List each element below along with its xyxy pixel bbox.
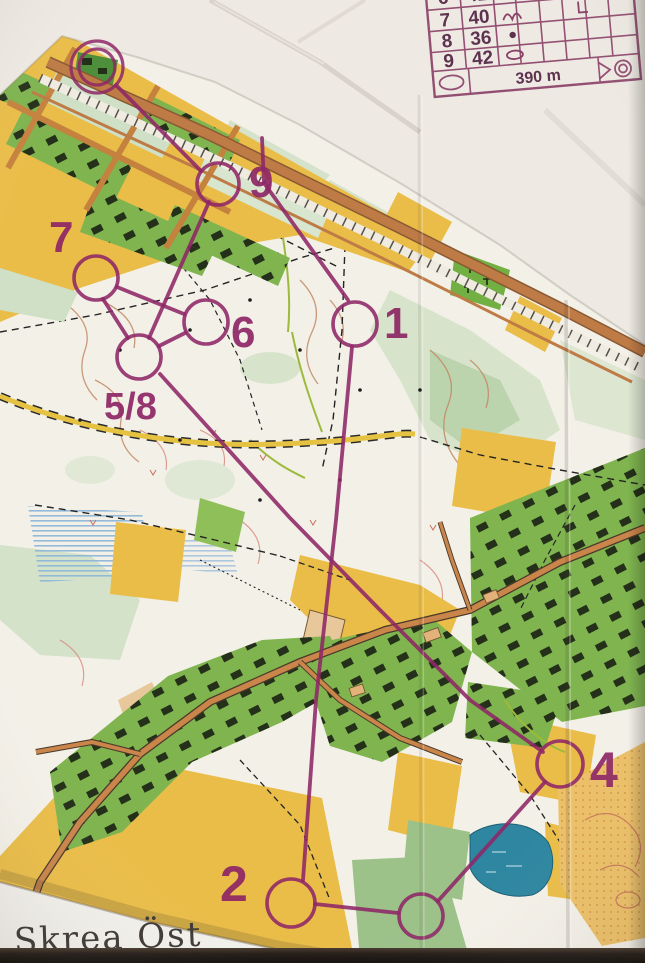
photo-of-orienteering-map: 1245/8679 641740836942 390 m Skrea Öst [0,0,645,963]
photo-vignette [0,0,645,963]
orienteering-map-photo: 1245/8679 641740836942 390 m Skrea Öst [0,0,645,963]
